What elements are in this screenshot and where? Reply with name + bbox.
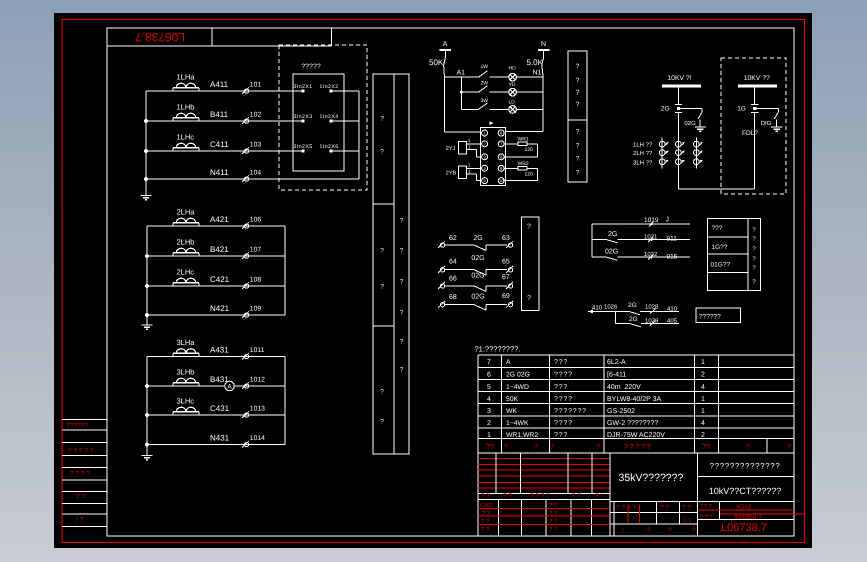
svg-text:3In2X5: 3In2X5 — [294, 144, 313, 150]
svg-text:?: ? — [380, 284, 384, 291]
svg-text:3LHb: 3LHb — [177, 368, 195, 377]
svg-text:? ? ? ?: ? ? ? ? — [530, 493, 550, 500]
svg-text:02G: 02G — [684, 120, 696, 127]
svg-text:? ?: ? ? — [549, 526, 558, 533]
svg-text:?: ? — [576, 102, 580, 109]
svg-text:2YJ: 2YJ — [446, 146, 456, 152]
svg-text:?: ? — [596, 444, 600, 451]
svg-text:A411: A411 — [210, 80, 229, 89]
svg-text:68: 68 — [449, 294, 457, 301]
svg-text:35kV???????: 35kV??????? — [619, 472, 684, 484]
svg-text:???????: ??????? — [554, 408, 587, 415]
svg-text:108: 108 — [250, 276, 262, 283]
svg-text:?!?: ?!? — [549, 502, 558, 509]
svg-text:DIG: DIG — [761, 120, 772, 127]
svg-text:6: 6 — [487, 372, 491, 379]
svg-text:107: 107 — [250, 246, 262, 253]
svg-text:02G: 02G — [471, 273, 484, 280]
svg-text:?: ? — [576, 78, 580, 85]
svg-text:67: 67 — [502, 274, 510, 281]
svg-text:109: 109 — [250, 305, 262, 312]
svg-text:410: 410 — [667, 306, 678, 313]
svg-text:N: N — [541, 41, 546, 48]
svg-text:5: 5 — [487, 384, 491, 391]
svg-text:405: 405 — [667, 318, 678, 325]
svg-text:LD: LD — [509, 99, 516, 105]
svg-text:L06738.7: L06738.7 — [721, 522, 767, 534]
svg-text:1LHa: 1LHa — [177, 73, 196, 82]
svg-text:N431: N431 — [210, 434, 230, 443]
svg-text:? ?: ? ? — [503, 493, 512, 500]
svg-text:? ?: ? ? — [481, 518, 490, 525]
svg-text:? ?: ? ? — [704, 503, 713, 510]
svg-text:6L2-A: 6L2-A — [607, 359, 626, 366]
svg-text:1022: 1022 — [644, 251, 658, 258]
svg-text:3LH ??: 3LH ?? — [633, 159, 653, 166]
svg-text:1~4WD: 1~4WD — [506, 384, 529, 391]
svg-text:4: 4 — [701, 384, 705, 391]
svg-text:2G 02G: 2G 02G — [506, 372, 530, 379]
svg-text:1LHc: 1LHc — [177, 133, 195, 142]
svg-text:? ?: ? ? — [481, 493, 490, 500]
svg-text:WR1,WR2: WR1,WR2 — [506, 432, 538, 439]
svg-text:3LHa: 3LHa — [177, 338, 196, 347]
svg-text:4: 4 — [701, 420, 705, 427]
svg-text:1LH ??: 1LH ?? — [633, 142, 653, 149]
svg-text:3LHc: 3LHc — [177, 397, 195, 406]
svg-text:? ? ? ?: ? ? ? ? — [70, 471, 90, 478]
svg-text:2G: 2G — [608, 231, 617, 238]
svg-text:? ?: ? ? — [549, 510, 558, 517]
svg-text:?: ? — [380, 149, 384, 156]
svg-text:103: 103 — [250, 141, 262, 148]
svg-text:?: ? — [400, 310, 404, 317]
svg-text:WR1: WR1 — [518, 136, 529, 142]
svg-text:2G: 2G — [629, 316, 638, 323]
svg-text:DJR-75W AC220V: DJR-75W AC220V — [607, 432, 665, 439]
svg-text:??????????????: ?????????????? — [710, 462, 781, 471]
svg-text:2YB: 2YB — [446, 171, 457, 177]
svg-text:YD: YD — [509, 82, 516, 88]
svg-text:3: 3 — [487, 408, 491, 415]
svg-text:? ?: ? ? — [682, 505, 691, 512]
svg-text:66: 66 — [449, 276, 457, 283]
svg-text:?: ? — [668, 527, 672, 534]
svg-text:A: A — [506, 359, 511, 366]
svg-text:10KV ?!: 10KV ?! — [667, 75, 691, 82]
svg-text:2: 2 — [701, 372, 705, 379]
svg-text:?: ? — [692, 527, 696, 534]
svg-text:02G: 02G — [471, 255, 484, 262]
svg-text:62: 62 — [449, 235, 457, 242]
svg-text:?: ? — [647, 527, 651, 534]
svg-text:1: 1 — [701, 396, 705, 403]
svg-text:N411: N411 — [210, 168, 229, 177]
svg-text:50K: 50K — [429, 58, 444, 67]
svg-text:1: 1 — [701, 408, 705, 415]
svg-text:1G: 1G — [737, 106, 746, 113]
svg-text:?: ? — [576, 129, 580, 136]
svg-text:1W: 1W — [481, 64, 489, 70]
svg-text:???: ??? — [554, 432, 568, 439]
svg-text:J: J — [666, 216, 670, 223]
svg-text:120: 120 — [525, 172, 534, 178]
svg-text:?: ? — [576, 90, 580, 97]
svg-text:? ?: ? ? — [572, 493, 581, 500]
svg-text:2LHb: 2LHb — [177, 238, 195, 247]
svg-text:104: 104 — [250, 169, 262, 176]
svg-text:2W: 2W — [481, 80, 489, 86]
svg-text:?: ? — [380, 116, 384, 123]
svg-text:1In2X2: 1In2X2 — [320, 84, 339, 90]
svg-text:2LHc: 2LHc — [177, 268, 195, 277]
svg-text:4: 4 — [487, 396, 491, 403]
svg-text:10kV??CT??????: 10kV??CT?????? — [709, 486, 782, 496]
svg-text:?: ? — [380, 389, 384, 396]
svg-text:02G: 02G — [605, 249, 618, 256]
svg-text:1~4WK: 1~4WK — [506, 420, 529, 427]
svg-text:10: 10 — [499, 178, 504, 183]
svg-text:1029: 1029 — [645, 318, 659, 325]
svg-text:?: ? — [527, 295, 531, 302]
svg-text:C431: C431 — [210, 404, 230, 413]
svg-text:?: ? — [550, 444, 554, 451]
svg-text:?: ? — [746, 444, 750, 451]
svg-text:?: ? — [400, 279, 404, 286]
svg-text:2LH ??: 2LH ?? — [633, 150, 653, 157]
svg-text:1In2X4: 1In2X4 — [320, 114, 339, 120]
svg-text:2: 2 — [701, 432, 705, 439]
svg-text:??????: ?????? — [699, 313, 721, 320]
svg-text:69: 69 — [502, 293, 510, 300]
svg-text:?: ? — [400, 367, 404, 374]
svg-text:!: ! — [622, 527, 624, 534]
svg-text:1014: 1014 — [250, 435, 265, 442]
svg-text:? ? ? ?: ? ? ? ? — [616, 505, 636, 512]
svg-text:106: 106 — [250, 216, 262, 223]
svg-text:102: 102 — [250, 111, 262, 118]
svg-text:50K: 50K — [506, 396, 519, 403]
svg-text:GW-2 ????????: GW-2 ???????? — [607, 420, 658, 427]
svg-text:?????: ????? — [624, 442, 652, 451]
svg-text:410: 410 — [592, 305, 603, 312]
svg-text:1021: 1021 — [644, 233, 658, 240]
svg-text:???: ??? — [554, 384, 568, 391]
svg-text:65: 65 — [502, 259, 510, 266]
svg-text:?: ? — [576, 64, 580, 71]
svg-text:GS-2502: GS-2502 — [607, 408, 635, 415]
svg-text:101: 101 — [250, 81, 262, 88]
svg-text:A: A — [443, 41, 448, 48]
svg-text:????: ???? — [554, 372, 573, 379]
svg-text:?: ? — [534, 444, 538, 451]
svg-text:2G: 2G — [661, 106, 670, 113]
svg-text:B421: B421 — [210, 245, 229, 254]
svg-text:?: ? — [400, 339, 404, 346]
svg-text:2G: 2G — [473, 235, 482, 242]
svg-text:?: ? — [504, 444, 508, 451]
svg-text:7: 7 — [487, 359, 491, 366]
svg-text:2LHa: 2LHa — [177, 208, 196, 217]
svg-text:??????: ?????? — [66, 423, 88, 430]
svg-text:?: ? — [400, 218, 404, 225]
svg-text:1028: 1028 — [645, 304, 659, 311]
svg-text:?: ? — [380, 419, 384, 426]
svg-text:N1: N1 — [533, 70, 542, 77]
svg-text:C421: C421 — [210, 275, 230, 284]
svg-text:?: ? — [527, 224, 531, 231]
svg-text:A: A — [227, 384, 232, 391]
svg-text:02G: 02G — [471, 294, 484, 301]
svg-text:B411: B411 — [210, 110, 229, 119]
svg-text:1: 1 — [487, 432, 491, 439]
svg-text:63: 63 — [502, 235, 510, 242]
svg-text:A431: A431 — [210, 346, 229, 355]
svg-text:???: ??? — [712, 225, 723, 232]
svg-text:1G??: 1G?? — [712, 244, 728, 251]
svg-text:01G??: 01G?? — [711, 262, 731, 269]
svg-text:1: 1 — [701, 359, 705, 366]
svg-text:FDL?: FDL? — [742, 130, 758, 137]
svg-text:XGx2: XGx2 — [736, 504, 752, 511]
svg-text:CAD: CAD — [480, 502, 493, 509]
svg-text:L:L: L:L — [684, 518, 692, 524]
svg-text:L06738.7: L06738.7 — [135, 30, 185, 44]
svg-text:?????: ????? — [301, 64, 321, 71]
svg-text:?: ? — [400, 248, 404, 255]
svg-text:1011: 1011 — [250, 347, 265, 354]
svg-text:? ?: ? ? — [481, 526, 490, 533]
svg-text:????: ???? — [554, 420, 573, 427]
svg-text:BYLW8-40/2P 3A: BYLW8-40/2P 3A — [607, 395, 662, 403]
svg-text:??: ?? — [702, 442, 710, 451]
svg-text:1012: 1012 — [250, 376, 265, 383]
svg-text:! ?: ! ? — [76, 517, 84, 524]
svg-text:120: 120 — [525, 147, 534, 153]
svg-text:40m 220V: 40m 220V — [607, 384, 641, 391]
svg-text:?: ? — [787, 444, 791, 451]
svg-text:2: 2 — [487, 420, 491, 427]
svg-text:?1:????????.: ?1:????????. — [475, 345, 521, 354]
svg-text:???: ??? — [554, 359, 568, 366]
svg-text:N421: N421 — [210, 304, 230, 313]
svg-text:915: 915 — [667, 254, 678, 261]
svg-text:? ?: ? ? — [76, 494, 85, 501]
svg-text:?: ? — [576, 143, 580, 150]
svg-text:????: ???? — [554, 396, 573, 403]
svg-text:A421: A421 — [210, 215, 229, 224]
svg-text:3W: 3W — [481, 98, 489, 104]
svg-text:3In2X1: 3In2X1 — [294, 84, 313, 90]
svg-text:10KV ??: 10KV ?? — [744, 75, 770, 82]
svg-text:?: ? — [576, 156, 580, 163]
svg-text:911: 911 — [667, 235, 678, 242]
svg-text:??: ?? — [486, 442, 494, 451]
svg-text:? ?: ? ? — [549, 518, 558, 525]
svg-text:WR2: WR2 — [518, 161, 529, 167]
svg-text:1In2X6: 1In2X6 — [320, 144, 339, 150]
svg-text:3In2X3: 3In2X3 — [294, 114, 313, 120]
svg-text:? ?: ? ? — [482, 510, 491, 517]
svg-text:C411: C411 — [210, 140, 229, 149]
svg-text:HD: HD — [509, 66, 517, 72]
svg-text:5.0K: 5.0K — [527, 58, 544, 67]
svg-text:[6-411: [6-411 — [607, 371, 626, 379]
svg-text:? ? ? ? ?: ? ? ? ? ? — [68, 448, 94, 455]
svg-text:1LHb: 1LHb — [177, 103, 195, 112]
svg-text:64: 64 — [449, 259, 457, 266]
svg-text:2G: 2G — [628, 302, 637, 309]
svg-text:1013: 1013 — [250, 405, 265, 412]
svg-text:WK: WK — [506, 408, 517, 415]
svg-text:? !: ? ! — [595, 493, 602, 500]
svg-text:1019: 1019 — [644, 217, 659, 224]
svg-text:?: ? — [576, 170, 580, 177]
svg-text:?: ? — [380, 248, 384, 255]
svg-text:1026: 1026 — [604, 304, 618, 311]
svg-text:A1: A1 — [457, 70, 466, 77]
svg-text:? ?: ? ? — [660, 505, 669, 512]
